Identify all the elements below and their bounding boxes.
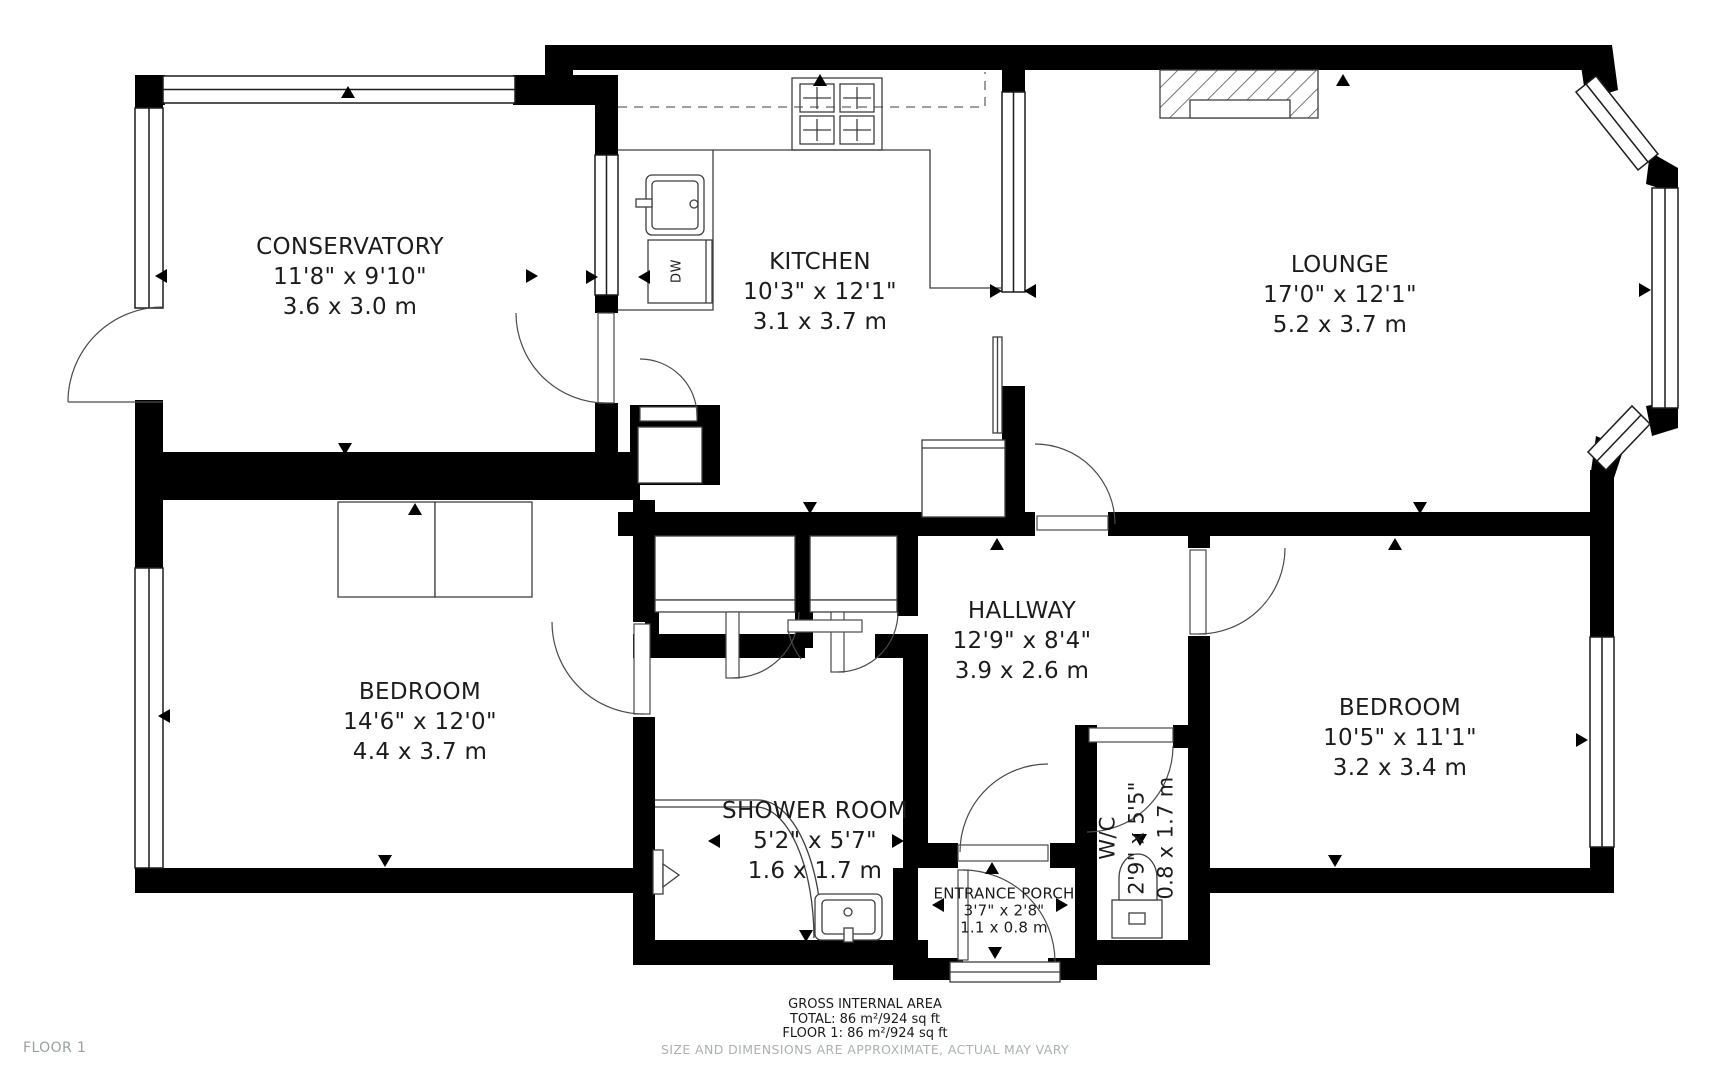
sink-icon <box>636 175 704 235</box>
kitchen-lobby-door <box>640 359 697 421</box>
room-label-conservatory: CONSERVATORY 11'8" x 9'10" 3.6 x 3.0 m <box>256 232 444 322</box>
room-dims-metric: 0.8 x 1.7 m <box>1152 776 1181 899</box>
room-name: HALLWAY <box>953 596 1092 626</box>
disclaimer: SIZE AND DIMENSIONS ARE APPROXIMATE, ACT… <box>661 1042 1069 1057</box>
room-dims-metric: 3.9 x 2.6 m <box>953 656 1092 686</box>
kitchen-lounge-glazing-icon <box>1002 92 1025 292</box>
room-dims-imperial: 2'9" x 5'5" <box>1123 776 1152 899</box>
room-label-entrance-porch: ENTRANCE PORCH 3'7" x 2'8" 1.1 x 0.8 m <box>934 886 1075 937</box>
room-label-shower-room: SHOWER ROOM 5'2" x 5'7" 1.6 x 1.7 m <box>722 796 908 886</box>
kitchen-unit-icon <box>922 440 1005 517</box>
room-label-hallway: HALLWAY 12'9" x 8'4" 3.9 x 2.6 m <box>953 596 1092 686</box>
bedroom1-left-window-icon <box>135 568 163 868</box>
room-dims-metric: 1.6 x 1.7 m <box>722 856 908 886</box>
lounge-door <box>1035 444 1115 530</box>
room-dims-imperial: 10'3" x 12'1" <box>743 277 897 307</box>
room-label-bedroom-2: BEDROOM 10'5" x 11'1" 3.2 x 3.4 m <box>1323 693 1477 783</box>
front-door <box>958 764 1048 861</box>
room-dims-imperial: 11'8" x 9'10" <box>256 262 444 292</box>
room-dims-imperial: 10'5" x 11'1" <box>1323 723 1477 753</box>
room-dims-imperial: 5'2" x 5'7" <box>722 826 908 856</box>
room-label-kitchen: KITCHEN 10'3" x 12'1" 3.1 x 3.7 m <box>743 247 897 337</box>
fireplace-icon <box>1160 70 1318 118</box>
room-name: ENTRANCE PORCH <box>934 886 1075 903</box>
room-name: BEDROOM <box>343 677 497 707</box>
room-dims-imperial: 12'9" x 8'4" <box>953 626 1092 656</box>
conservatory-exterior-door <box>68 307 163 402</box>
basin-icon <box>815 894 882 942</box>
bedroom2-door <box>1190 548 1285 634</box>
room-dims-metric: 3.1 x 3.7 m <box>743 307 897 337</box>
room-dims-metric: 4.4 x 3.7 m <box>343 737 497 767</box>
floor1-area: FLOOR 1: 86 m²/924 sq ft <box>661 1027 1069 1042</box>
lobby-step <box>638 427 702 483</box>
hall-cupboard-right <box>810 536 897 612</box>
room-dims-imperial: 14'6" x 12'0" <box>343 707 497 737</box>
room-dims-metric: 3.2 x 3.4 m <box>1323 753 1477 783</box>
porch-steps-icon <box>950 962 1060 982</box>
room-name: BEDROOM <box>1323 693 1477 723</box>
room-dims-metric: 1.1 x 0.8 m <box>934 920 1075 937</box>
bedroom1-door <box>552 622 650 714</box>
room-dims-metric: 3.6 x 3.0 m <box>256 292 444 322</box>
radiator-icon <box>993 337 1002 433</box>
floorplan-canvas: CONSERVATORY 11'8" x 9'10" 3.6 x 3.0 m K… <box>0 0 1729 1080</box>
room-name: LOUNGE <box>1263 250 1417 280</box>
room-name: CONSERVATORY <box>256 232 444 262</box>
room-label-lounge: LOUNGE 17'0" x 12'1" 5.2 x 3.7 m <box>1263 250 1417 340</box>
room-dims-imperial: 17'0" x 12'1" <box>1263 280 1417 310</box>
room-label-wc: W/C 2'9" x 5'5" 0.8 x 1.7 m <box>1094 776 1181 899</box>
room-dims-metric: 5.2 x 3.7 m <box>1263 310 1417 340</box>
conservatory-kitchen-door <box>516 313 614 403</box>
stove-icon <box>792 78 882 150</box>
hall-cupboard-left <box>655 536 795 612</box>
bedroom2-right-window-icon <box>1590 637 1614 847</box>
room-name: KITCHEN <box>743 247 897 277</box>
floor-label: FLOOR 1 <box>23 1040 86 1056</box>
room-dims-imperial: 3'7" x 2'8" <box>934 903 1075 920</box>
room-label-bedroom-1: BEDROOM 14'6" x 12'0" 4.4 x 3.7 m <box>343 677 497 767</box>
footer-area-summary: GROSS INTERNAL AREA TOTAL: 86 m²/924 sq … <box>661 998 1069 1057</box>
dishwasher-label: DW <box>670 259 685 283</box>
gross-area-title: GROSS INTERNAL AREA <box>661 998 1069 1013</box>
wardrobe-icon <box>338 502 532 597</box>
room-name: SHOWER ROOM <box>722 796 908 826</box>
total-area: TOTAL: 86 m²/924 sq ft <box>661 1013 1069 1028</box>
conservatory-kitchen-glazing-icon <box>595 155 618 295</box>
floorplan-drawing <box>0 0 1729 1080</box>
bay-window-middle-icon <box>1652 188 1678 408</box>
conservatory-top-window-icon <box>163 76 515 103</box>
room-name: W/C <box>1094 776 1123 899</box>
